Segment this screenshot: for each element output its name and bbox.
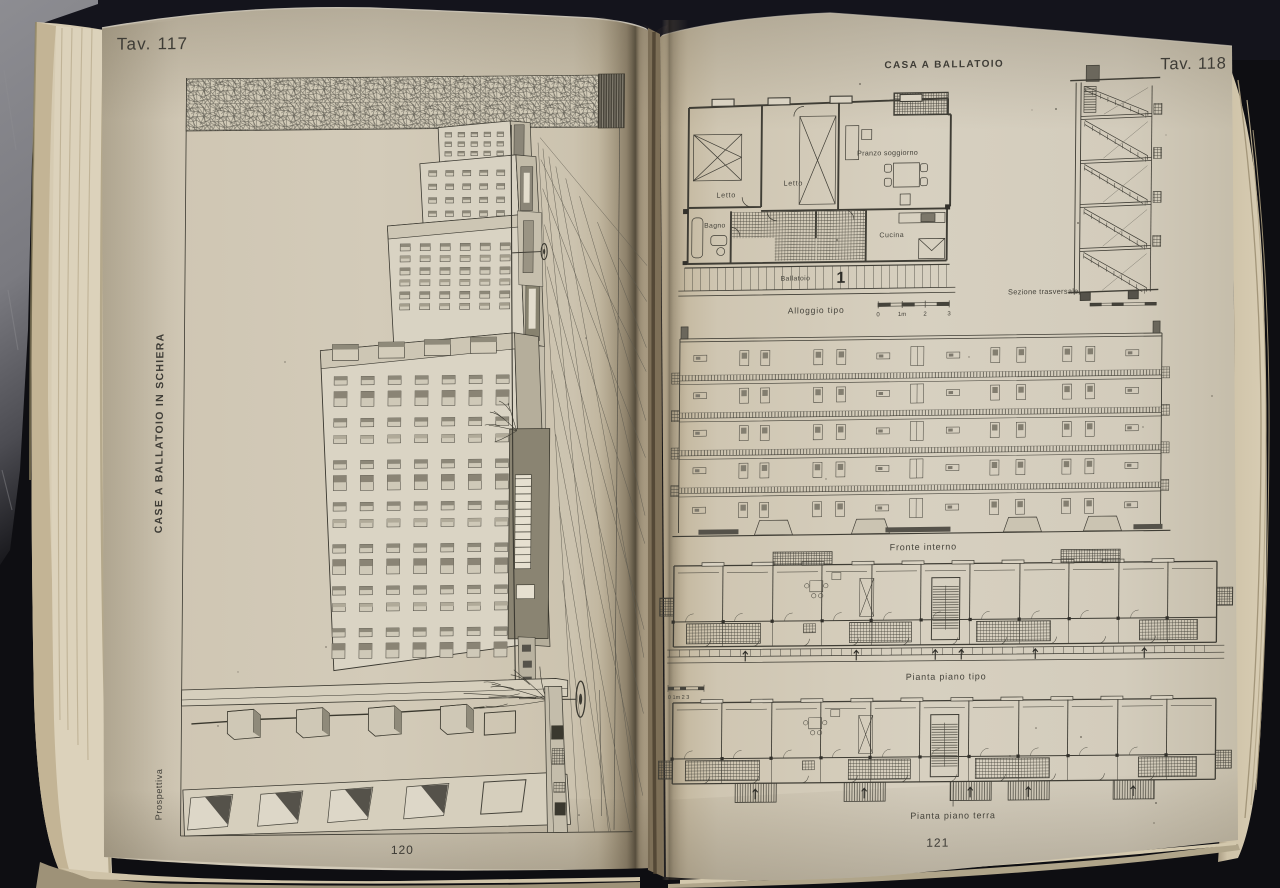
svg-text:CASA A BALLATOIO: CASA A BALLATOIO: [884, 59, 1004, 72]
svg-text:CASE A BALLATOIO IN SCHIERA: CASE A BALLATOIO IN SCHIERA: [153, 332, 167, 533]
svg-text:Bagno: Bagno: [704, 222, 726, 229]
svg-text:Cucina: Cucina: [879, 232, 904, 239]
svg-text:Tav. 118: Tav. 118: [1160, 54, 1226, 73]
svg-text:Letto: Letto: [784, 178, 804, 187]
svg-text:Tav. 117: Tav. 117: [117, 34, 188, 54]
svg-text:Fronte interno: Fronte interno: [890, 541, 957, 552]
svg-text:0 1m 2 3: 0 1m 2 3: [668, 695, 689, 701]
svg-text:121: 121: [926, 836, 949, 850]
svg-text:Alloggio tipo: Alloggio tipo: [788, 305, 845, 316]
svg-text:Pranzo soggiorno: Pranzo soggiorno: [857, 148, 918, 158]
svg-text:Letto: Letto: [716, 190, 736, 199]
svg-text:Ballatoio: Ballatoio: [781, 275, 811, 282]
svg-text:Pianta piano terra: Pianta piano terra: [910, 810, 996, 821]
svg-text:Prospettiva: Prospettiva: [154, 769, 164, 821]
svg-text:1m: 1m: [898, 312, 906, 318]
svg-text:1: 1: [836, 270, 845, 287]
svg-text:Pianta piano tipo: Pianta piano tipo: [906, 671, 987, 682]
svg-text:Sezione trasversale: Sezione trasversale: [1008, 287, 1079, 297]
svg-text:120: 120: [391, 843, 414, 857]
